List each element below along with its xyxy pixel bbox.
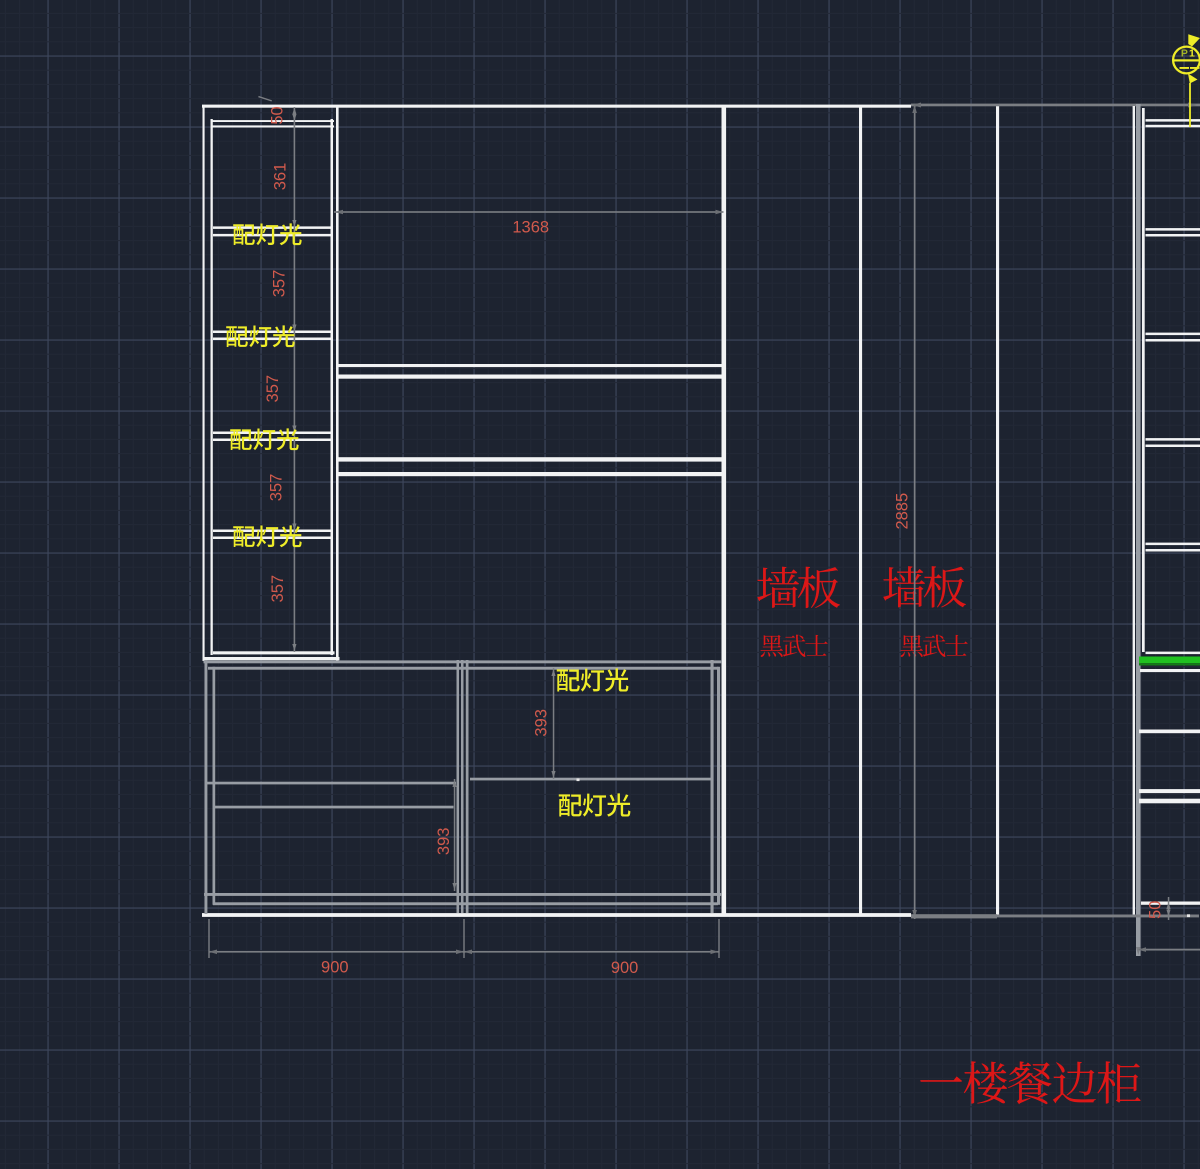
svg-text:393: 393 [435, 828, 453, 856]
svg-text:50: 50 [1147, 901, 1165, 919]
svg-text:1368: 1368 [512, 218, 549, 236]
svg-text:P: P [1181, 48, 1188, 60]
svg-text:357: 357 [270, 270, 288, 298]
svg-text:1: 1 [1189, 48, 1195, 60]
svg-text:357: 357 [264, 375, 282, 403]
svg-text:357: 357 [269, 575, 287, 603]
svg-text:393: 393 [533, 709, 551, 737]
svg-text:900: 900 [611, 959, 639, 977]
svg-text:2885: 2885 [894, 493, 912, 530]
svg-text:900: 900 [321, 958, 349, 976]
svg-text:357: 357 [268, 474, 286, 502]
svg-text:361: 361 [271, 163, 289, 191]
svg-text:50: 50 [268, 106, 286, 124]
